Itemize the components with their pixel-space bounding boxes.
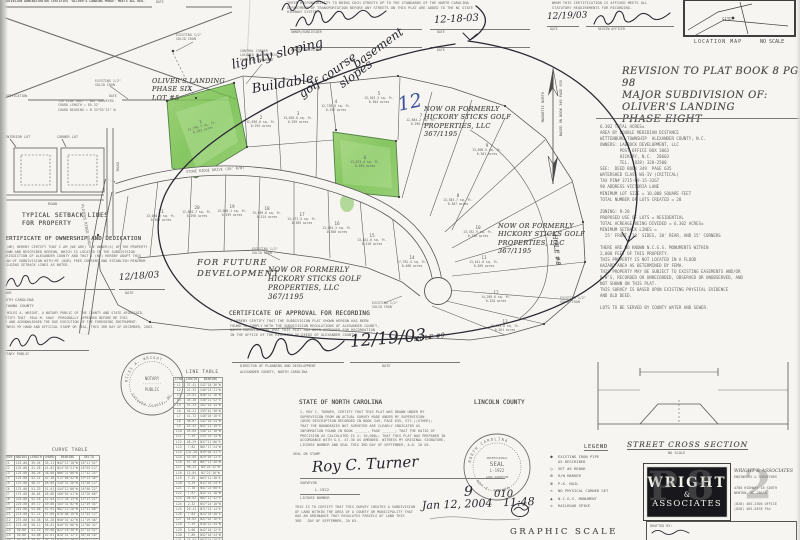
- lot-number: 13: [482, 320, 528, 325]
- handwritten-note: 9: [464, 484, 473, 500]
- cert-line: HIGHWAY SYSTEM.: [287, 10, 473, 15]
- seal-or-stamp-label: SEAL OR STAMP: [293, 452, 320, 456]
- location-map-box: [684, 0, 795, 36]
- handwritten-circle: [512, 504, 529, 517]
- lot-area-sqft: 13,068.6 sq. ft.: [138, 215, 184, 219]
- lot-number: 21: [138, 210, 184, 215]
- legend-item: ⊞ R/W MARKER: [548, 474, 658, 479]
- title-line-2: MAJOR SUBDIVISION OF:: [622, 90, 800, 102]
- lot-number: 12: [473, 291, 519, 296]
- survey-pin-markers: [97, 50, 586, 339]
- legend-item: ⊠ P.K. NAIL: [548, 482, 658, 487]
- review-officer-label: REVIEW OFFICER: [598, 28, 625, 32]
- map-annotation: CONTROL CORNER LOCATED & W/WITNESS FROM …: [240, 49, 278, 62]
- lot-area-acres: 0.299 acres: [275, 121, 321, 125]
- lot-area-sqft: 13,471.5 sq. ft.: [279, 218, 325, 222]
- lot-area-acres: 0.300 acres: [314, 231, 360, 235]
- legend-item-text: RAILROAD SPIKE: [558, 504, 590, 509]
- lot-number: 10: [455, 226, 501, 231]
- lot-label: 18 13,699.6 sq. ft. 0.314 acres: [244, 207, 290, 220]
- director-label-1: DIRECTOR OF PLANNING AND DEVELOPMENT: [240, 364, 316, 368]
- lot-area-acres: 0.309 acres: [279, 222, 325, 226]
- lot-area-sqft: 13,383.7 sq. ft.: [435, 199, 481, 203]
- road-intersection: [107, 182, 117, 192]
- license-number-label: LICENSE NUMBER: [300, 496, 330, 500]
- drafted-by-label: DRAFTED BY:: [650, 524, 796, 528]
- svg-text:MILES A. WRIGHT: MILES A. WRIGHT: [124, 356, 163, 382]
- map-annotation: EXISTING 1/2" SOLID IRON: [560, 296, 586, 305]
- legend-symbol-icon: ⊠: [548, 482, 555, 487]
- lot-number: 8: [435, 194, 481, 199]
- lot-area-sqft: 13,873.4 sq. ft.: [342, 161, 388, 165]
- plat-title-block: REVISION TO PLAT BOOK 8 PG 98 MAJOR SUBD…: [622, 66, 800, 126]
- svg-text:SEAL: SEAL: [490, 461, 505, 468]
- subdivision-boundary: [98, 76, 585, 340]
- review-officer-signature: [594, 11, 670, 24]
- lot-number: 11: [461, 256, 507, 261]
- north-arrow: [548, 68, 558, 184]
- lot-area-sqft: 13,008.1 sq. ft.: [209, 210, 255, 214]
- svg-text:NORTH CAROLINA: NORTH CAROLINA: [467, 436, 510, 463]
- lot-label: 17 13,471.5 sq. ft. 0.309 acres: [279, 213, 325, 226]
- svg-text:PUBLIC: PUBLIC: [145, 387, 160, 392]
- legend-item-text: SET #4 REBAR: [558, 467, 585, 472]
- legend-symbol-icon: ⊞: [548, 474, 555, 479]
- lot-number: 7: [398, 114, 444, 119]
- lot-number: 16: [314, 222, 360, 227]
- lot-area-acres: 0.408 acres: [389, 265, 435, 269]
- lot-label: 20 12,894.7 sq. ft. 0.296 acres: [174, 206, 220, 219]
- lot-division-lines: [120, 77, 585, 335]
- legend: ● EXISTING IRON PIPE AS DESCRIBED ○ SET …: [548, 455, 658, 512]
- owner-subdivider-label-2: OWNER/SUBDIVIDER: [291, 49, 322, 53]
- owner-date-label: DATE: [125, 291, 133, 295]
- handwritten-scribble: [514, 507, 529, 510]
- owner-subdivider-label: OWNER/SUBDIVIDER: [291, 31, 322, 35]
- lot-area-acres: 0.328 acres: [473, 300, 519, 304]
- highlighted-lot-polygons: [167, 83, 399, 212]
- svg-text:NOTARY: NOTARY: [145, 376, 160, 381]
- faint-scribble: [430, 517, 520, 520]
- director-sig-rule: [232, 362, 344, 363]
- lot-area-sqft: 12,884.2 sq. ft.: [398, 119, 444, 123]
- lot-area-sqft: 12,894.7 sq. ft.: [174, 211, 220, 215]
- street-standards-cert: THEIR RESPONSIBILITY TO BRING SUCH STREE…: [287, 1, 473, 15]
- green-marker-smear: [340, 194, 354, 212]
- legend-item-text: EXISTING IRON PIPE AS DESCRIBED: [558, 455, 599, 464]
- lot-area-acres: 0.292 acres: [313, 109, 359, 113]
- lot-label: 15 13,841.0 sq. ft. 0.318 acres: [349, 234, 395, 247]
- curve-table-title: CURVE TABLE: [52, 448, 88, 453]
- cert-line: WHOM THIS CERTIFICATION IS AFFIXED MEETS…: [552, 1, 647, 6]
- voided-cert-date-label: DATE: [156, 1, 164, 5]
- graphic-scale-label: GRAPHIC SCALE: [510, 527, 618, 537]
- lot-area-acres: 0.318 acres: [349, 243, 395, 247]
- lot-area-acres: 0.307 acres: [435, 203, 481, 207]
- lot-label: 2 12,836.6 sq. ft. 0.295 acres: [238, 116, 284, 129]
- voided-cert-certification-label: CERTIFICATION: [2, 95, 27, 99]
- cert-line: I, MILES A. WRIGHT, A NOTARY PUBLIC OF T…: [1, 311, 154, 316]
- location-map-site-label: SITE: [722, 17, 732, 22]
- svg-text:PROFESSIONAL: PROFESSIONAL: [487, 456, 508, 460]
- lot-label: 1 13,796.7 sq. ft. 0.292 acres: [178, 114, 226, 139]
- cert-line: 3RD DAY OF SEPTEMBER, 20 03.: [295, 519, 415, 524]
- license-number-value: L-1922: [315, 488, 329, 493]
- lot-area-sqft: 12,738.8 sq. ft.: [313, 105, 359, 109]
- ownership-cert-body: I (WE) HEREBY CERTIFY THAT I AM (WE ARE)…: [2, 245, 147, 268]
- voided-cert-topline: SUBDIVISION ADMINISTRATOR CERTIFIES 'OLI…: [1, 0, 231, 4]
- legend-symbol-icon: ▲: [548, 497, 555, 502]
- lot-number: 19: [209, 205, 255, 210]
- lot-area-acres: 0.316 acres: [455, 235, 501, 239]
- handwritten-note: 12: [396, 89, 424, 116]
- plat-document-page: MILES A. WRIGHT Catawba County, NC NOTAR…: [0, 0, 800, 540]
- legend-symbol-icon: ●: [548, 455, 555, 464]
- lot-label: 9 13,098.5 sq. ft. 0.301 acres: [464, 144, 510, 157]
- lot-area-acres: 0.295 acres: [342, 165, 388, 169]
- map-annotation: EXISTING 1/2" SOLID IRON: [372, 301, 398, 310]
- lot-number: 20: [174, 206, 220, 211]
- lot-label: 14 17,782.4 sq. ft. 0.408 acres: [389, 256, 435, 269]
- recording-cert-body: I HEREBY CERTIFY THAT THE SUBDIVISION PL…: [230, 319, 379, 338]
- legend-symbol-icon: ○: [548, 467, 555, 472]
- lot-label: 13 15,743.8 sq. ft. 0.361 acres: [482, 320, 528, 333]
- road-label-bottom: ROAD: [48, 202, 57, 207]
- handwritten-note: Roy C. Turner: [312, 452, 419, 476]
- date-label-2: DATE: [437, 49, 445, 53]
- legend-title: LEGEND: [584, 444, 608, 451]
- line-table: LINE LENGTH BEARING L1 37.41 S42°18'36"W…: [173, 377, 223, 540]
- lot-number: 9: [464, 144, 510, 149]
- lot-area-acres: 0.295 acres: [238, 125, 284, 129]
- plat-notes: 6.302 TOTAL ACRES±AREA BY DOUBLE MERIDIA…: [600, 124, 800, 311]
- legend-item-text: P.K. NAIL: [558, 482, 579, 487]
- note-line: LOTS TO BE SERVED BY COUNTY WATER AND SE…: [600, 305, 800, 311]
- state-label: STATE OF NORTH CAROLINA: [299, 399, 382, 406]
- owner-label: OWNER: [1, 291, 12, 295]
- title-line-3: OLIVER'S LANDING: [622, 102, 800, 114]
- title-line-1: REVISION TO PLAT BOOK 8 PG 98: [622, 66, 800, 90]
- state-cert-body: I, ROY C. TURNER, CERTIFY THAT THIS PLAT…: [300, 410, 445, 448]
- cert-line: INFORMATION FOUND IN BOOK ______, PAGE _…: [300, 429, 445, 434]
- corner-lot-label: CORNER LOT: [57, 135, 78, 139]
- map-annotation: TIE LINE ONLY - NOT SURVEYED CHORD LENGT…: [58, 99, 116, 112]
- lot-label: 12 14,289.6 sq. ft. 0.328 acres: [473, 291, 519, 304]
- county-label: LINCOLN COUNTY: [474, 399, 525, 406]
- map-label: FOR FUTURE DEVELOPMENT: [197, 258, 280, 280]
- lot-number: 15: [349, 234, 395, 239]
- map-annotation: EXISTING 1/2" SOLID IRON: [176, 33, 202, 42]
- lot-area-sqft: 12,836.6 sq. ft.: [238, 121, 284, 125]
- lot-area-acres: 0.304 acres: [356, 101, 402, 105]
- cross-section-scale: NO SCALE: [668, 451, 685, 455]
- lot-number: 5: [356, 92, 402, 97]
- curve-table: CURVE RADIUS LENGTH CHORD BEARING DELTA …: [1, 455, 100, 540]
- scan-crease: [247, 0, 250, 60]
- lot-label: 7 12,884.2 sq. ft. 0.296 acres: [398, 114, 444, 127]
- line-table-title: LINE TABLE: [186, 370, 219, 375]
- lot-area-acres: 0.301 acres: [464, 153, 510, 157]
- review-date-label: DATE: [550, 28, 558, 32]
- owner-date-rule: [119, 289, 165, 290]
- lot-area-sqft: 13,098.5 sq. ft.: [464, 149, 510, 153]
- map-label: HOLE #9: [414, 332, 446, 344]
- handwritten-note: 12/18/03: [119, 270, 160, 283]
- lot-number: 2: [238, 116, 284, 121]
- lot-label: 21 13,068.6 sq. ft. 0.300 acres: [138, 210, 184, 223]
- date-rule-2: [430, 47, 530, 48]
- lot-area-sqft: 13,841.0 sq. ft.: [349, 239, 395, 243]
- review-officer-cert: WHOM THIS CERTIFICATION IS AFFIXED MEETS…: [552, 1, 647, 10]
- lot-number: 6: [342, 156, 388, 161]
- lot-label: 5 13,263.3 sq. ft. 0.304 acres: [356, 92, 402, 105]
- cert-line: I, ROY C. TURNER, CERTIFY THAT THIS PLAT…: [300, 410, 445, 415]
- lot-area-sqft: 13,782.9 sq. ft.: [455, 231, 501, 235]
- map-annotation: STONE RIDGE DRIVE (50' R/W): [186, 166, 245, 175]
- lot-number: 14: [389, 256, 435, 261]
- lot-label: 8 13,383.7 sq. ft. 0.307 acres: [435, 194, 481, 207]
- lot-area-sqft: 15,743.8 sq. ft.: [482, 325, 528, 329]
- lot-area-sqft: 13,064.3 sq. ft.: [314, 227, 360, 231]
- legend-item: ● EXISTING IRON PIPE AS DESCRIBED: [548, 455, 658, 464]
- svg-text:L-1922: L-1922: [490, 468, 505, 473]
- lot-area-acres: 0.361 acres: [482, 329, 528, 333]
- legend-item: ▲ N.C.G.S. MONUMENT: [548, 497, 658, 502]
- cert-line: WITNESS MY HAND AND OFFICIAL STAMP OR SE…: [1, 325, 154, 330]
- notary-county: CATAWBA COUNTY: [1, 304, 34, 309]
- surveyor-seal: NORTH CAROLINA ROY C. TURNER PROFESSIONA…: [464, 434, 530, 500]
- lot-area-sqft: 13,028.6 sq. ft.: [275, 117, 321, 121]
- street-cross-section-drawing: [598, 362, 788, 430]
- handwritten-note: golf course: [296, 50, 359, 101]
- owner-signature-left: [6, 275, 64, 286]
- date-rule: [430, 29, 530, 30]
- voided-cert-date-label2: DATE: [109, 95, 117, 99]
- legend-item: ✕ NO PHYSICAL CORNER SET: [548, 489, 658, 494]
- license-rule: [300, 494, 360, 495]
- handwritten-note: 12/19/03: [547, 11, 588, 22]
- map-annotation: EXISTING 1/2" SOLID IRON: [252, 247, 278, 256]
- notary-sig-rule: [1, 350, 89, 351]
- lot-area-acres: 0.296 acres: [398, 123, 444, 127]
- svg-text:Catawba County, NC: Catawba County, NC: [131, 393, 172, 408]
- lot-area-sqft: 14,289.6 sq. ft.: [473, 296, 519, 300]
- notary-body: I, MILES A. WRIGHT, A NOTARY PUBLIC OF T…: [1, 311, 154, 329]
- recording-cert-title: CERTIFICATE OF APPROVAL FOR RECORDING: [229, 310, 370, 317]
- legend-symbol-icon: ◇: [548, 504, 555, 509]
- surveyor-sig-rule: [300, 478, 505, 479]
- interior-lot-label: INTERIOR LOT: [5, 135, 30, 139]
- lot-label: 6 13,873.4 sq. ft. 0.295 acres: [342, 156, 388, 169]
- cert-line: THEIR RESPONSIBILITY TO BRING SUCH STREE…: [287, 1, 473, 6]
- lot-area-acres: 0.309 acres: [461, 265, 507, 269]
- director-date-label: DATE: [382, 364, 390, 368]
- title-underline: [596, 118, 800, 119]
- map-label: OLIVER'S LANDING PHASE SIX LOT #5: [152, 77, 225, 102]
- lot-number: 4: [313, 100, 359, 105]
- lot-area-acres: 0.300 acres: [138, 219, 184, 223]
- lot-area-sqft: 13,441.8 sq. ft.: [461, 261, 507, 265]
- director-signature: [248, 339, 344, 359]
- setback-caption-1: TYPICAL SETBACK LINES: [22, 212, 108, 219]
- cert-line: I HEREBY CERTIFY THAT THE SUBDIVISION PL…: [230, 319, 379, 324]
- lot-area-acres: 0.299 acres: [209, 214, 255, 218]
- legend-symbol-icon: ✕: [548, 489, 555, 494]
- date-label: DATE: [437, 31, 445, 35]
- road-label-side: ROAD: [116, 162, 121, 171]
- location-map-scale: NO SCALE: [760, 39, 784, 45]
- handwritten-loop: [158, 41, 637, 340]
- lot-number: 1: [178, 114, 224, 132]
- lot-area-sqft: 13,796.7 sq. ft.: [180, 119, 225, 135]
- cul-de-sac: [425, 278, 452, 305]
- cert-line: IN THE OFFICE OF THE REGISTER OF DEEDS O…: [230, 333, 379, 338]
- handwritten-note: 010: [494, 489, 513, 500]
- notary-public-label: NOTARY PUBLIC: [2, 352, 29, 356]
- legend-item-text: NO PHYSICAL CORNER SET: [558, 489, 608, 494]
- north-basis-label: BASED ON BOOK 349 PAGE 635: [559, 80, 563, 136]
- lot-number: 18: [244, 207, 290, 212]
- lot-area-sqft: 13,263.3 sq. ft.: [356, 97, 402, 101]
- recorder-stamp-watermark: P8 2: [648, 461, 780, 510]
- svg-text:·········: ·········: [143, 382, 162, 386]
- lot-label: 10 13,782.9 sq. ft. 0.316 acres: [455, 226, 501, 239]
- cert-line: STATUTORY REQUIREMENTS FOR RECORDING.: [552, 6, 647, 11]
- handwritten-note: Jan 12, 2004 11:48: [422, 495, 535, 512]
- legend-item: ○ SET #4 REBAR: [548, 467, 658, 472]
- surveyor-label: SURVEYOR: [300, 481, 317, 485]
- cert-line: BUILDING SETBACK LINES AS NOTED.: [2, 263, 147, 268]
- director-date-rule: [350, 362, 460, 363]
- map-label: NOW OR FORMERLY HICKORY STICKS GOLF PROP…: [498, 222, 585, 256]
- lot-label: 19 13,008.1 sq. ft. 0.299 acres: [209, 205, 255, 218]
- leader-lines: [110, 42, 402, 303]
- lot-label: 4 12,738.8 sq. ft. 0.292 acres: [313, 100, 359, 113]
- map-annotation: EXISTING 1/2" SOLID IRON: [95, 79, 121, 88]
- legend-item: ◇ RAILROAD SPIKE: [548, 504, 658, 509]
- cert-line: LICENSE NUMBER AND SEAL THIS 3RD DAY OF …: [300, 443, 445, 448]
- drafted-by-box: DRAFTED BY:: [646, 521, 797, 540]
- closing-cert-body: THIS IS TO CERTIFY THAT THIS SURVEY CREA…: [295, 505, 415, 524]
- lot-number: 3: [275, 112, 321, 117]
- lot-label: 11 13,441.8 sq. ft. 0.309 acres: [461, 256, 507, 269]
- handwritten-note: slopes: [336, 57, 375, 91]
- cert-line: I (WE) HEREBY CERTIFY THAT I AM (WE ARE)…: [2, 245, 147, 250]
- lot-label: 3 13,028.6 sq. ft. 0.299 acres: [275, 112, 321, 125]
- cross-section-title: STREET CROSS SECTION: [627, 440, 748, 450]
- handwritten-note: Buildable: [251, 71, 315, 97]
- lot-area-acres: 0.296 acres: [174, 215, 220, 219]
- lot-number: 17: [279, 213, 325, 218]
- legend-item-text: R/W MARKER: [558, 474, 581, 479]
- voided-certificate-lines: [0, 7, 236, 100]
- cert-line: THIS IS TO CERTIFY THAT THIS SURVEY CREA…: [295, 505, 415, 510]
- map-label: HOLE #8: [550, 234, 562, 266]
- svg-text:ROY C. TURNER: ROY C. TURNER: [475, 479, 511, 493]
- map-label: NOW OR FORMERLY HICKORY STICKS GOLF PROP…: [424, 105, 511, 139]
- handwritten-note: lightly sloping: [230, 36, 325, 73]
- lot-area-acres: 0.292 acres: [181, 123, 226, 139]
- magnetic-north-label: MAGNETIC NORTH: [541, 92, 545, 122]
- setback-caption-2: FOR PROPERTY: [22, 220, 71, 227]
- director-label-2: ALEXANDER COUNTY, NORTH CAROLINA: [240, 370, 307, 374]
- lot-area-acres: 0.314 acres: [244, 216, 290, 220]
- lot-area-sqft: 17,782.4 sq. ft.: [389, 261, 435, 265]
- location-map-caption: LOCATION MAP: [694, 39, 742, 45]
- lot-label: 16 13,064.3 sq. ft. 0.300 acres: [314, 222, 360, 235]
- handwritten-arrowhead: [463, 33, 477, 40]
- notary-signature: [10, 335, 64, 346]
- owner-sig-rule: [1, 289, 115, 290]
- ownership-cert-title: CERTIFICATE OF OWNERSHIP AND DEDICATION: [2, 236, 141, 242]
- map-label: NOW OR FORMERLY HICKORY STICKS GOLF PROP…: [268, 266, 361, 302]
- lot-area-sqft: 13,699.6 sq. ft.: [244, 212, 290, 216]
- legend-item-text: N.C.G.S. MONUMENT: [558, 497, 597, 502]
